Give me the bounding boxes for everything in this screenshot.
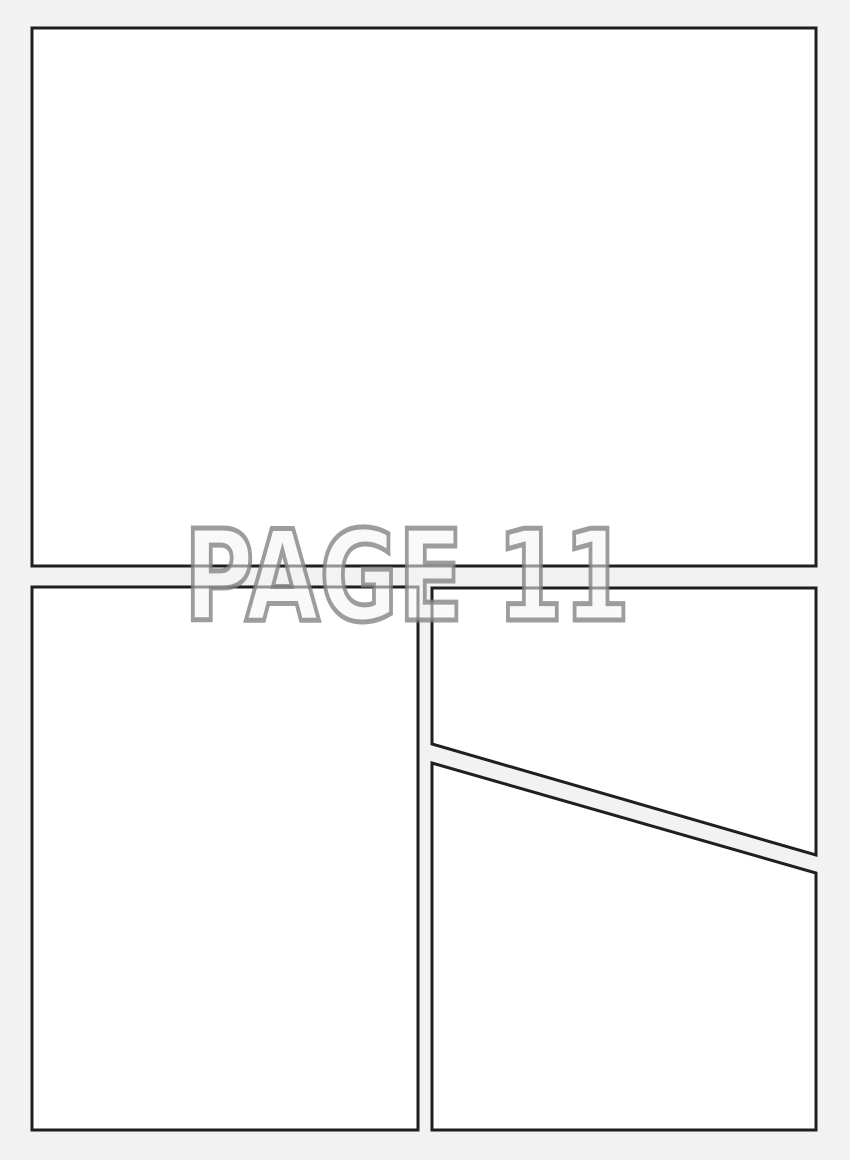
comic-page-template: PAGE 11 bbox=[0, 0, 850, 1160]
page-number-watermark: PAGE 11 bbox=[184, 503, 630, 650]
comic-panel-bottom-left[interactable] bbox=[32, 587, 418, 1130]
comic-panel-top[interactable] bbox=[32, 28, 816, 566]
page-canvas: PAGE 11 bbox=[0, 0, 850, 1160]
